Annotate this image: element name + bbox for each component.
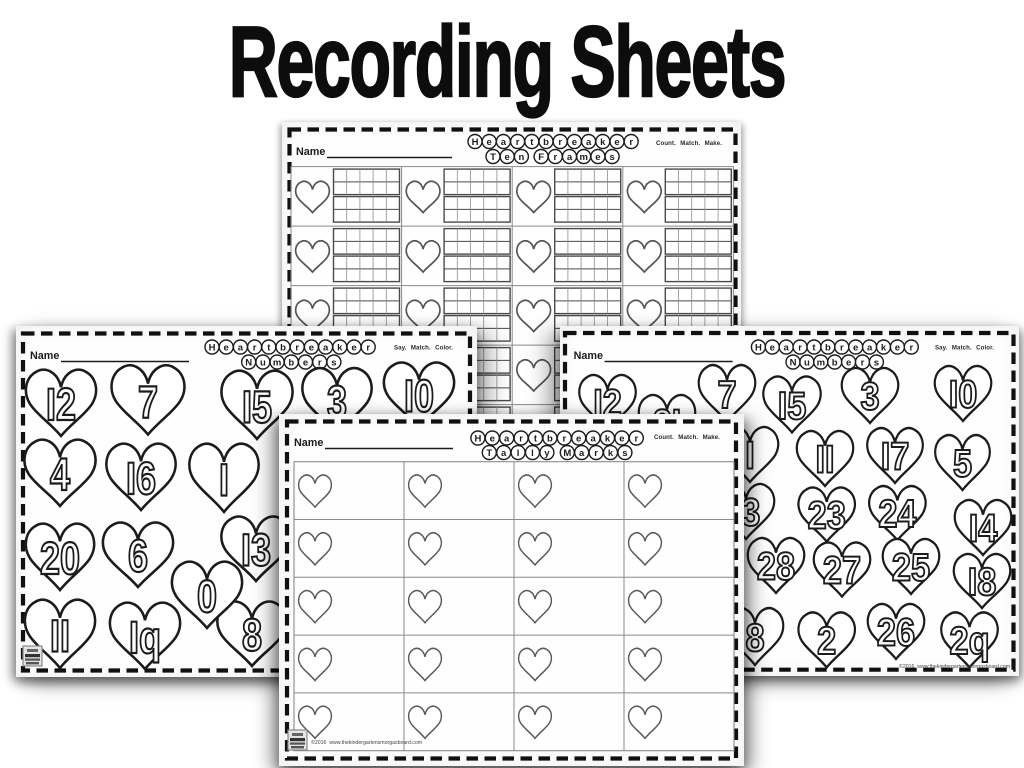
svg-text:e: e — [846, 357, 851, 368]
svg-text:s: s — [622, 448, 627, 459]
svg-text:e: e — [224, 342, 229, 353]
svg-text:24: 24 — [878, 492, 917, 536]
svg-text:e: e — [614, 137, 619, 148]
svg-text:u: u — [260, 357, 266, 368]
svg-text:28: 28 — [757, 545, 795, 589]
svg-text:a: a — [784, 342, 790, 353]
svg-text:4: 4 — [50, 449, 70, 500]
svg-text:27: 27 — [823, 548, 861, 592]
svg-text:a: a — [590, 433, 596, 444]
svg-text:b: b — [832, 357, 838, 368]
svg-text:H: H — [209, 342, 216, 353]
svg-text:e: e — [853, 342, 858, 353]
svg-text:r: r — [366, 342, 370, 353]
svg-text:T: T — [486, 448, 492, 459]
svg-text:l: l — [531, 448, 534, 459]
svg-text:I3: I3 — [241, 525, 271, 576]
svg-text:23: 23 — [808, 493, 846, 537]
svg-text:u: u — [804, 357, 810, 368]
svg-text:Count. Match. Make.: Count. Match. Make. — [656, 140, 722, 147]
svg-text:r: r — [798, 342, 802, 353]
svg-text:6: 6 — [128, 531, 148, 582]
svg-text:e: e — [619, 433, 624, 444]
svg-text:r: r — [553, 152, 557, 163]
svg-text:m: m — [273, 357, 281, 368]
svg-text:I4: I4 — [969, 507, 998, 551]
svg-text:I0: I0 — [949, 373, 978, 417]
svg-text:II: II — [815, 438, 834, 482]
svg-text:a: a — [579, 448, 585, 459]
svg-text:r: r — [840, 342, 844, 353]
svg-text:r: r — [861, 357, 865, 368]
svg-text:e: e — [770, 342, 775, 353]
svg-text:Name: Name — [294, 437, 323, 449]
svg-text:s: s — [331, 357, 336, 368]
svg-text:Iq: Iq — [129, 612, 161, 663]
svg-text:k: k — [608, 448, 614, 459]
svg-text:e: e — [351, 342, 356, 353]
svg-text:y: y — [544, 448, 550, 459]
svg-text:Say. Match. Color.: Say. Match. Color. — [935, 345, 994, 352]
svg-text:II: II — [50, 611, 70, 662]
svg-text:2q: 2q — [949, 619, 989, 663]
svg-text:e: e — [595, 152, 600, 163]
svg-text:5: 5 — [953, 442, 972, 486]
svg-text:e: e — [303, 357, 308, 368]
svg-text:b: b — [825, 342, 831, 353]
svg-text:r: r — [253, 342, 257, 353]
svg-text:a: a — [323, 342, 329, 353]
svg-text:r: r — [562, 433, 566, 444]
svg-text:a: a — [586, 137, 592, 148]
svg-text:3: 3 — [860, 375, 879, 419]
svg-text:0: 0 — [197, 571, 217, 622]
svg-text:b: b — [288, 357, 294, 368]
svg-text:r: r — [909, 342, 913, 353]
svg-text:b: b — [547, 433, 553, 444]
svg-text:N: N — [245, 357, 252, 368]
svg-text:m: m — [579, 152, 587, 163]
svg-text:k: k — [881, 342, 887, 353]
svg-text:I5: I5 — [778, 384, 807, 428]
svg-text:k: k — [605, 433, 611, 444]
svg-text:e: e — [895, 342, 900, 353]
svg-text:r: r — [594, 448, 598, 459]
svg-text:I8: I8 — [968, 560, 997, 604]
svg-text:7: 7 — [138, 377, 158, 428]
svg-text:Say. Match. Color.: Say. Match. Color. — [394, 345, 453, 352]
svg-text:Name: Name — [30, 350, 59, 362]
svg-text:©2016 www.thekindergartensmor: ©2016 www.thekindergartensmorgasboard.co… — [311, 739, 422, 746]
svg-text:s: s — [874, 357, 879, 368]
svg-text:H: H — [472, 137, 479, 148]
svg-text:©2016 www.thekindergartensmor: ©2016 www.thekindergartensmorgasboard.co… — [899, 663, 1010, 670]
svg-text:l: l — [517, 448, 520, 459]
svg-text:r: r — [558, 137, 562, 148]
svg-text:I: I — [745, 434, 755, 478]
svg-text:r: r — [634, 433, 638, 444]
svg-text:b: b — [543, 137, 549, 148]
svg-text:26: 26 — [877, 611, 915, 655]
svg-text:m: m — [817, 357, 825, 368]
svg-text:25: 25 — [892, 546, 930, 590]
svg-text:r: r — [295, 342, 299, 353]
svg-text:a: a — [501, 448, 507, 459]
svg-text:e: e — [505, 152, 510, 163]
svg-text:a: a — [504, 433, 510, 444]
svg-text:k: k — [600, 137, 606, 148]
svg-text:H: H — [755, 342, 762, 353]
svg-text:I2: I2 — [46, 379, 76, 430]
svg-text:n: n — [518, 152, 524, 163]
svg-text:I6: I6 — [126, 453, 156, 504]
svg-text:k: k — [337, 342, 343, 353]
svg-text:a: a — [567, 152, 573, 163]
svg-text:I7: I7 — [881, 435, 910, 479]
svg-text:b: b — [280, 342, 286, 353]
svg-text:M: M — [563, 448, 571, 459]
svg-text:7: 7 — [717, 373, 736, 417]
svg-text:s: s — [609, 152, 614, 163]
svg-text:8: 8 — [242, 610, 262, 661]
svg-text:N: N — [790, 357, 797, 368]
svg-text:a: a — [867, 342, 873, 353]
svg-text:a: a — [238, 342, 244, 353]
svg-text:F: F — [538, 152, 544, 163]
svg-text:20: 20 — [40, 533, 80, 584]
svg-text:e: e — [576, 433, 581, 444]
svg-text:H: H — [474, 433, 481, 444]
svg-text:r: r — [516, 137, 520, 148]
svg-text:8: 8 — [745, 616, 764, 660]
svg-text:Count. Match. Make.: Count. Match. Make. — [654, 434, 720, 441]
svg-text:r: r — [629, 137, 633, 148]
svg-text:2: 2 — [817, 619, 836, 663]
svg-text:e: e — [309, 342, 314, 353]
svg-text:e: e — [490, 433, 495, 444]
svg-text:I5: I5 — [242, 382, 272, 433]
svg-text:r: r — [519, 433, 523, 444]
svg-text:e: e — [487, 137, 492, 148]
svg-text:Name: Name — [296, 146, 325, 158]
svg-text:e: e — [572, 137, 577, 148]
svg-text:a: a — [501, 137, 507, 148]
svg-text:T: T — [490, 152, 496, 163]
svg-text:Name: Name — [574, 350, 603, 362]
svg-text:I: I — [219, 455, 229, 506]
